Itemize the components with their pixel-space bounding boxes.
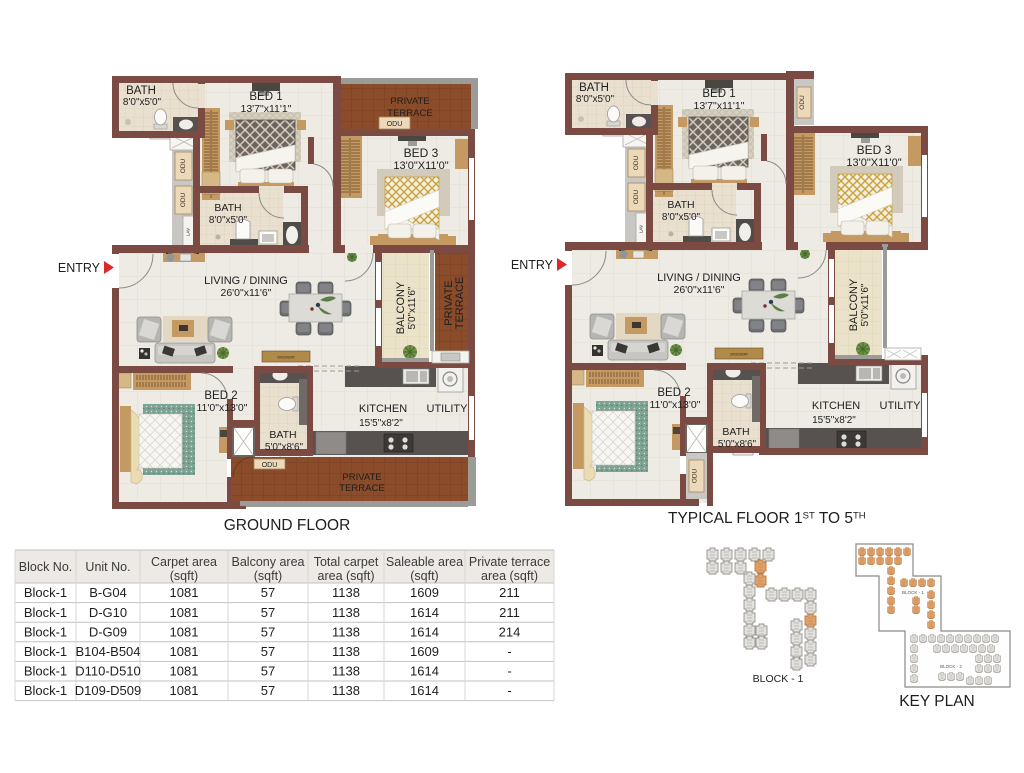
svg-text:57: 57: [261, 585, 275, 600]
svg-text:13'0"X11'0": 13'0"X11'0": [846, 157, 901, 169]
svg-text:BATH: BATH: [667, 199, 694, 211]
svg-text:(sqft): (sqft): [410, 569, 438, 583]
svg-text:BED 1: BED 1: [702, 88, 735, 100]
svg-text:PRIVATE: PRIVATE: [342, 472, 381, 483]
svg-text:-: -: [507, 644, 511, 659]
svg-text:ENTRY: ENTRY: [511, 258, 554, 272]
svg-text:-: -: [507, 683, 511, 698]
svg-text:ODU: ODU: [633, 189, 640, 204]
svg-text:Block-1: Block-1: [24, 683, 67, 698]
svg-text:26'0"x11'6": 26'0"x11'6": [221, 287, 272, 299]
svg-text:BATH: BATH: [722, 426, 749, 438]
svg-text:1081: 1081: [170, 624, 199, 639]
svg-text:CROCKERY: CROCKERY: [277, 356, 296, 360]
svg-text:Private terrace: Private terrace: [469, 555, 550, 569]
svg-text:1081: 1081: [170, 664, 199, 679]
svg-text:LAV: LAV: [639, 224, 644, 233]
svg-text:D109-D509: D109-D509: [75, 683, 142, 698]
svg-text:(sqft): (sqft): [170, 569, 198, 583]
svg-text:BED 1: BED 1: [249, 91, 282, 103]
svg-text:57: 57: [261, 683, 275, 698]
svg-text:BALCONY: BALCONY: [395, 281, 407, 334]
svg-text:ODU: ODU: [633, 155, 640, 170]
svg-text:57: 57: [261, 664, 275, 679]
svg-text:BLOCK - 1: BLOCK - 1: [753, 673, 804, 685]
svg-text:5'0"x11'6": 5'0"x11'6": [407, 286, 418, 329]
svg-text:PRIVATE: PRIVATE: [390, 96, 429, 107]
svg-text:5'0"x11'6": 5'0"x11'6": [860, 283, 871, 326]
svg-text:BATH: BATH: [126, 85, 156, 97]
svg-text:1609: 1609: [410, 644, 439, 659]
svg-text:Total carpet: Total carpet: [314, 555, 379, 569]
svg-text:Block No.: Block No.: [19, 560, 73, 574]
svg-text:1609: 1609: [410, 585, 439, 600]
svg-text:Block-1: Block-1: [24, 644, 67, 659]
svg-text:KITCHEN: KITCHEN: [359, 403, 407, 415]
svg-text:TERRACE: TERRACE: [454, 277, 466, 330]
svg-text:1081: 1081: [170, 585, 199, 600]
svg-text:BED 2: BED 2: [657, 387, 690, 399]
svg-text:ODU: ODU: [262, 462, 278, 469]
svg-text:ODU: ODU: [692, 468, 699, 483]
svg-text:57: 57: [261, 605, 275, 620]
svg-text:B-G04: B-G04: [89, 585, 127, 600]
svg-text:LIVING / DINING: LIVING / DINING: [657, 272, 741, 284]
svg-text:BED 3: BED 3: [404, 146, 439, 160]
svg-text:11'0"x13'0": 11'0"x13'0": [650, 399, 701, 411]
svg-text:1614: 1614: [410, 624, 439, 639]
svg-text:15'5"x8'2": 15'5"x8'2": [359, 418, 403, 429]
svg-text:KITCHEN: KITCHEN: [812, 400, 860, 412]
svg-text:ODU: ODU: [180, 158, 187, 173]
svg-text:5'0"x8'6": 5'0"x8'6": [265, 442, 304, 453]
svg-text:(sqft): (sqft): [254, 569, 282, 583]
svg-text:LIVING / DINING: LIVING / DINING: [204, 275, 288, 287]
svg-text:Block-1: Block-1: [24, 605, 67, 620]
svg-text:1138: 1138: [332, 644, 360, 659]
svg-text:Block-1: Block-1: [24, 664, 67, 679]
svg-text:KEY PLAN: KEY PLAN: [899, 693, 975, 710]
svg-text:8'0"x5'0": 8'0"x5'0": [209, 215, 248, 226]
svg-text:BATH: BATH: [269, 429, 296, 441]
svg-text:GROUND FLOOR: GROUND FLOOR: [224, 517, 351, 534]
svg-text:13'7"x11'1": 13'7"x11'1": [241, 103, 292, 115]
svg-text:-: -: [507, 664, 511, 679]
svg-text:1138: 1138: [332, 664, 360, 679]
svg-text:ODU: ODU: [799, 95, 806, 110]
svg-text:1081: 1081: [170, 683, 199, 698]
svg-text:1138: 1138: [332, 624, 360, 639]
svg-text:BALCONY: BALCONY: [848, 278, 860, 331]
svg-text:Block-1: Block-1: [24, 585, 67, 600]
svg-text:211: 211: [499, 585, 520, 600]
svg-text:26'0"x11'6": 26'0"x11'6": [674, 284, 725, 296]
svg-text:ODU: ODU: [180, 192, 187, 207]
svg-text:BED 2: BED 2: [204, 390, 237, 402]
svg-text:BATH: BATH: [579, 82, 609, 94]
svg-text:CROCKERY: CROCKERY: [730, 353, 749, 357]
svg-text:1081: 1081: [170, 605, 199, 620]
svg-text:1138: 1138: [332, 605, 360, 620]
svg-text:1138: 1138: [332, 585, 360, 600]
svg-text:13'7"x11'1": 13'7"x11'1": [694, 100, 745, 112]
svg-text:Balcony area: Balcony area: [232, 555, 305, 569]
svg-text:Block-1: Block-1: [24, 624, 67, 639]
svg-text:1081: 1081: [170, 644, 199, 659]
svg-text:area (sqft): area (sqft): [481, 569, 538, 583]
svg-text:ENTRY: ENTRY: [58, 261, 101, 275]
svg-text:8'0"x5'0": 8'0"x5'0": [123, 97, 162, 108]
svg-text:1138: 1138: [332, 683, 360, 698]
svg-text:BED 3: BED 3: [857, 143, 892, 157]
svg-text:D-G10: D-G10: [89, 605, 127, 620]
svg-text:211: 211: [499, 605, 520, 620]
svg-text:Unit No.: Unit No.: [85, 560, 130, 574]
svg-text:TERRACE: TERRACE: [339, 483, 384, 494]
svg-text:11'0"x13'0": 11'0"x13'0": [197, 402, 248, 414]
svg-text:Carpet area: Carpet area: [151, 555, 217, 569]
svg-text:BATH: BATH: [214, 202, 241, 214]
svg-text:5'0"x8'6": 5'0"x8'6": [718, 439, 757, 450]
svg-text:8'0"x5'0": 8'0"x5'0": [662, 212, 701, 223]
svg-text:UTILITY: UTILITY: [427, 403, 469, 415]
svg-text:ODU: ODU: [387, 121, 403, 128]
svg-text:Saleable area: Saleable area: [386, 555, 463, 569]
svg-text:13'0"X11'0": 13'0"X11'0": [393, 160, 448, 172]
svg-text:area (sqft): area (sqft): [318, 569, 375, 583]
svg-text:BLOCK - 1: BLOCK - 1: [902, 590, 924, 595]
svg-text:B104-B504: B104-B504: [75, 644, 140, 659]
svg-text:TYPICAL FLOOR 1ST TO 5TH: TYPICAL FLOOR 1ST TO 5TH: [668, 510, 866, 527]
svg-text:LAV: LAV: [186, 227, 191, 236]
svg-text:UTILITY: UTILITY: [880, 400, 922, 412]
svg-text:1614: 1614: [410, 683, 439, 698]
svg-text:D-G09: D-G09: [89, 624, 127, 639]
svg-text:1614: 1614: [410, 664, 439, 679]
svg-text:15'5"x8'2": 15'5"x8'2": [812, 415, 856, 426]
svg-text:57: 57: [261, 644, 275, 659]
svg-text:D110-D510: D110-D510: [75, 664, 141, 679]
svg-text:8'0"x5'0": 8'0"x5'0": [576, 94, 615, 105]
svg-text:57: 57: [261, 624, 275, 639]
svg-text:1614: 1614: [410, 605, 439, 620]
svg-text:BLOCK - 2: BLOCK - 2: [940, 664, 962, 669]
svg-text:214: 214: [499, 624, 521, 639]
